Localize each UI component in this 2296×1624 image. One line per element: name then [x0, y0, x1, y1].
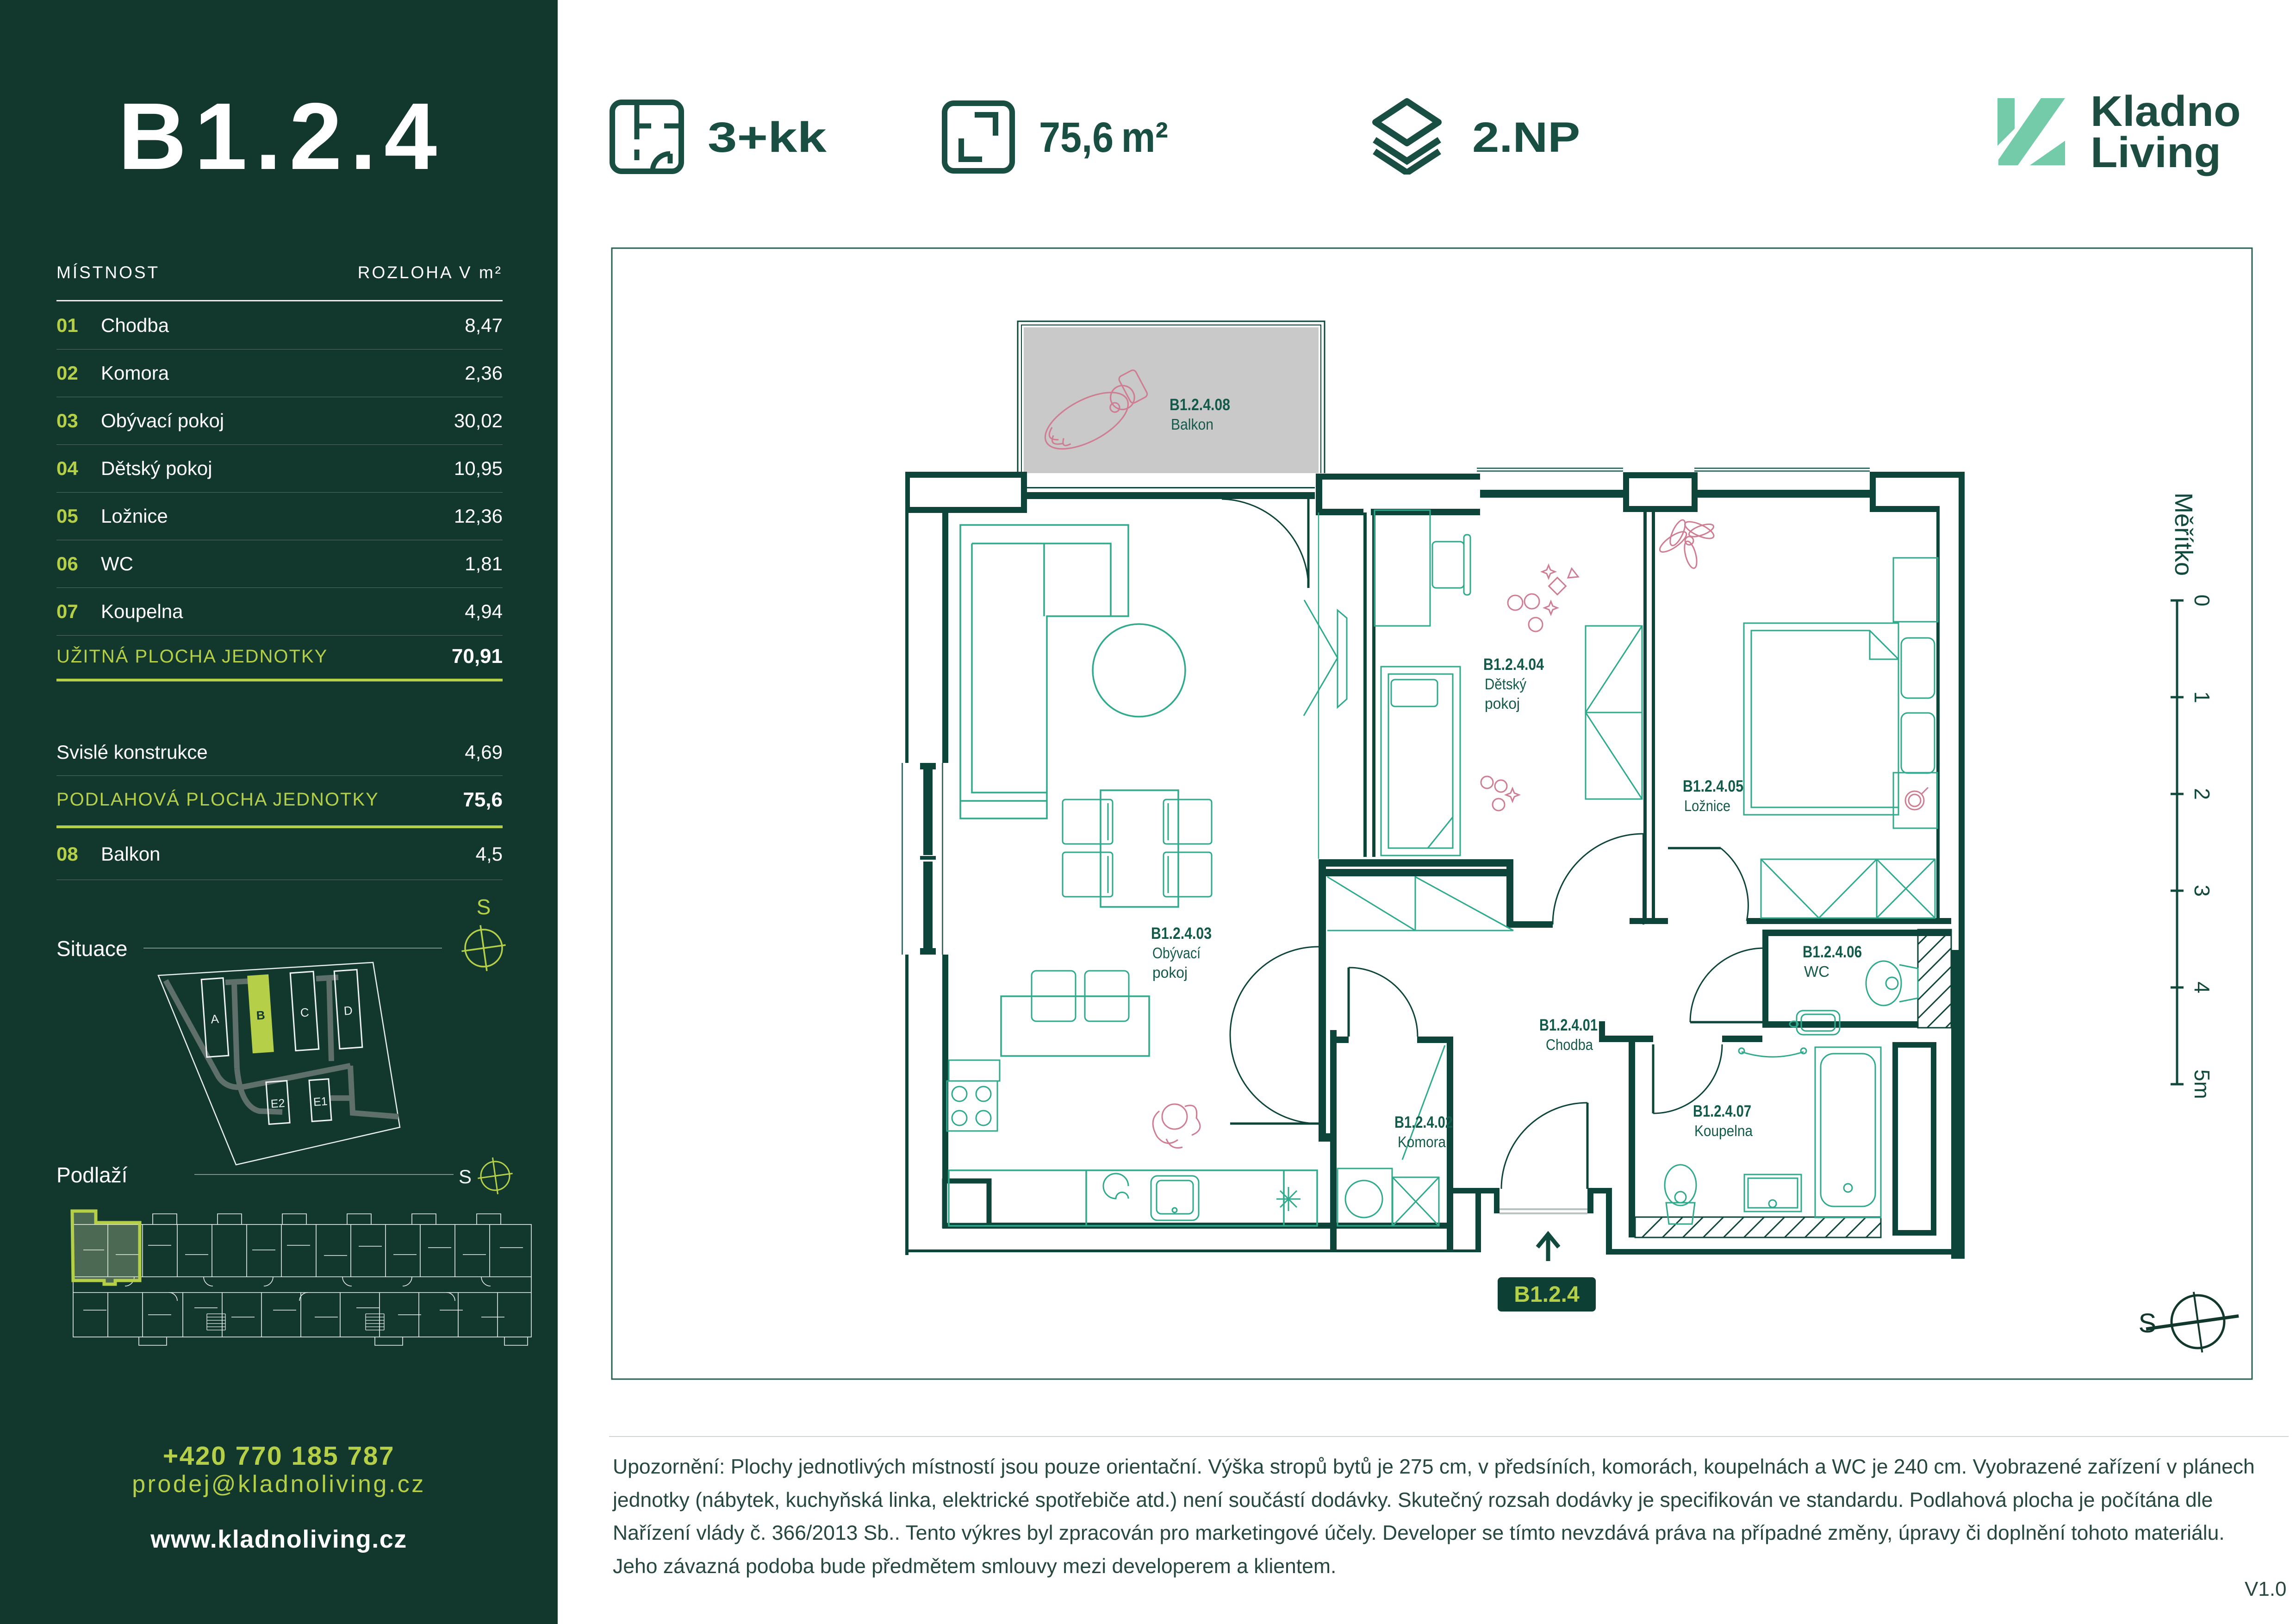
svg-text:1: 1	[2190, 691, 2214, 703]
svg-text:Dětský: Dětský	[1485, 675, 1526, 693]
svg-text:B1.2.4.04: B1.2.4.04	[1483, 656, 1544, 674]
svg-text:2: 2	[2190, 788, 2214, 800]
svg-text:B1.2.4.06: B1.2.4.06	[1803, 943, 1862, 961]
svg-text:WC: WC	[1804, 963, 1829, 980]
svg-text:B1.2.4.01: B1.2.4.01	[1539, 1016, 1598, 1034]
svg-text:Koupelna: Koupelna	[1694, 1122, 1753, 1139]
svg-text:Měřítko: Měřítko	[2170, 493, 2197, 576]
svg-text:B1.2.4.03: B1.2.4.03	[1151, 924, 1212, 943]
svg-text:Ložnice: Ložnice	[1684, 797, 1730, 814]
svg-text:Chodba: Chodba	[1546, 1036, 1593, 1053]
svg-text:pokoj: pokoj	[1152, 964, 1188, 981]
svg-text:Balkon: Balkon	[1171, 416, 1213, 433]
svg-text:B1.2.4.05: B1.2.4.05	[1683, 777, 1743, 795]
svg-text:Komora: Komora	[1398, 1133, 1446, 1150]
svg-text:B1.2.4.08: B1.2.4.08	[1170, 396, 1230, 414]
svg-text:Obývací: Obývací	[1152, 944, 1201, 962]
svg-text:B1.2.4: B1.2.4	[1514, 1282, 1580, 1307]
svg-text:B1.2.4.02: B1.2.4.02	[1394, 1113, 1453, 1131]
svg-text:4: 4	[2190, 981, 2214, 993]
svg-text:0: 0	[2190, 594, 2214, 606]
svg-text:pokoj: pokoj	[1485, 695, 1520, 712]
svg-text:B1.2.4.07: B1.2.4.07	[1693, 1102, 1751, 1120]
svg-text:S: S	[2139, 1308, 2157, 1338]
svg-text:3: 3	[2190, 885, 2214, 897]
svg-text:5m: 5m	[2190, 1069, 2214, 1099]
